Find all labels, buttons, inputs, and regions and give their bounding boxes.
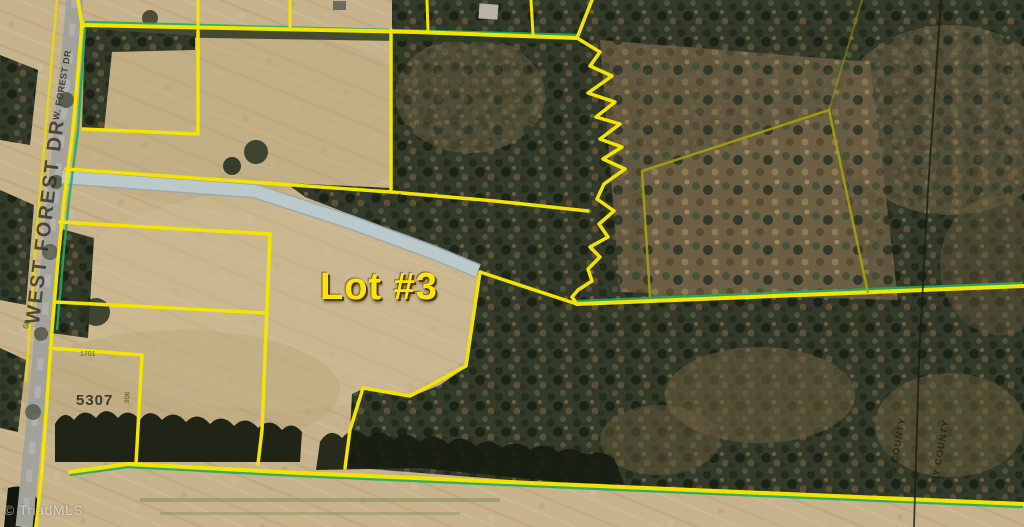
building — [478, 3, 498, 19]
map-canvas: Lot #3 WEST FOREST DR W. FOREST DR 60 53… — [0, 0, 1024, 527]
building — [333, 1, 346, 10]
aerial-parcel-map — [0, 0, 1024, 527]
